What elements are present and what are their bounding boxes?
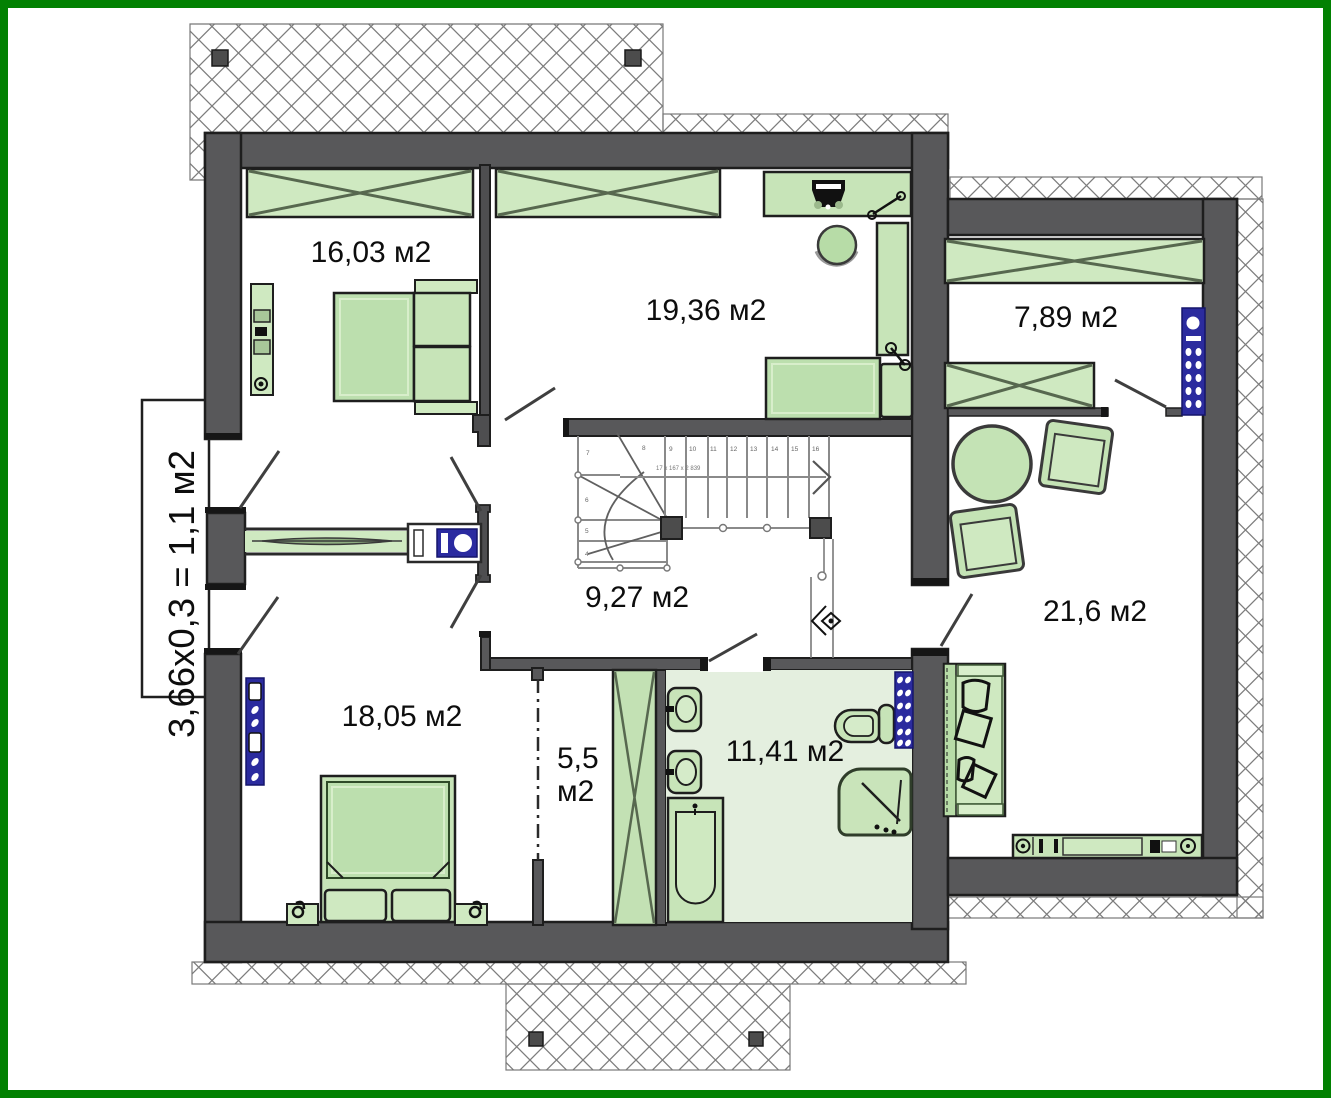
svg-text:14: 14 <box>771 446 779 453</box>
svg-text:5: 5 <box>585 528 589 535</box>
svg-text:9: 9 <box>669 446 673 453</box>
svg-text:6: 6 <box>585 497 589 504</box>
svg-text:13: 13 <box>750 446 758 453</box>
svg-text:3,66x0,3 = 1,1 м2: 3,66x0,3 = 1,1 м2 <box>161 450 202 738</box>
svg-text:9,27 м2: 9,27 м2 <box>585 581 689 614</box>
svg-text:11: 11 <box>710 446 717 453</box>
svg-text:11,41 м2: 11,41 м2 <box>726 735 845 768</box>
svg-text:4: 4 <box>585 551 589 558</box>
svg-text:21,6 м2: 21,6 м2 <box>1043 595 1147 628</box>
svg-text:м2: м2 <box>557 775 594 808</box>
svg-text:18,05 м2: 18,05 м2 <box>342 700 463 733</box>
svg-text:7: 7 <box>586 450 590 457</box>
svg-text:16: 16 <box>812 446 820 453</box>
svg-text:15: 15 <box>791 446 799 453</box>
svg-text:12: 12 <box>730 446 738 453</box>
svg-text:10: 10 <box>689 446 697 453</box>
svg-text:17 x 167 x 2 839: 17 x 167 x 2 839 <box>656 466 701 472</box>
svg-text:19,36 м2: 19,36 м2 <box>646 294 767 327</box>
svg-text:16,03 м2: 16,03 м2 <box>311 236 432 269</box>
svg-text:7,89 м2: 7,89 м2 <box>1014 301 1118 334</box>
svg-text:8: 8 <box>642 445 646 452</box>
svg-text:5,5: 5,5 <box>557 742 599 775</box>
